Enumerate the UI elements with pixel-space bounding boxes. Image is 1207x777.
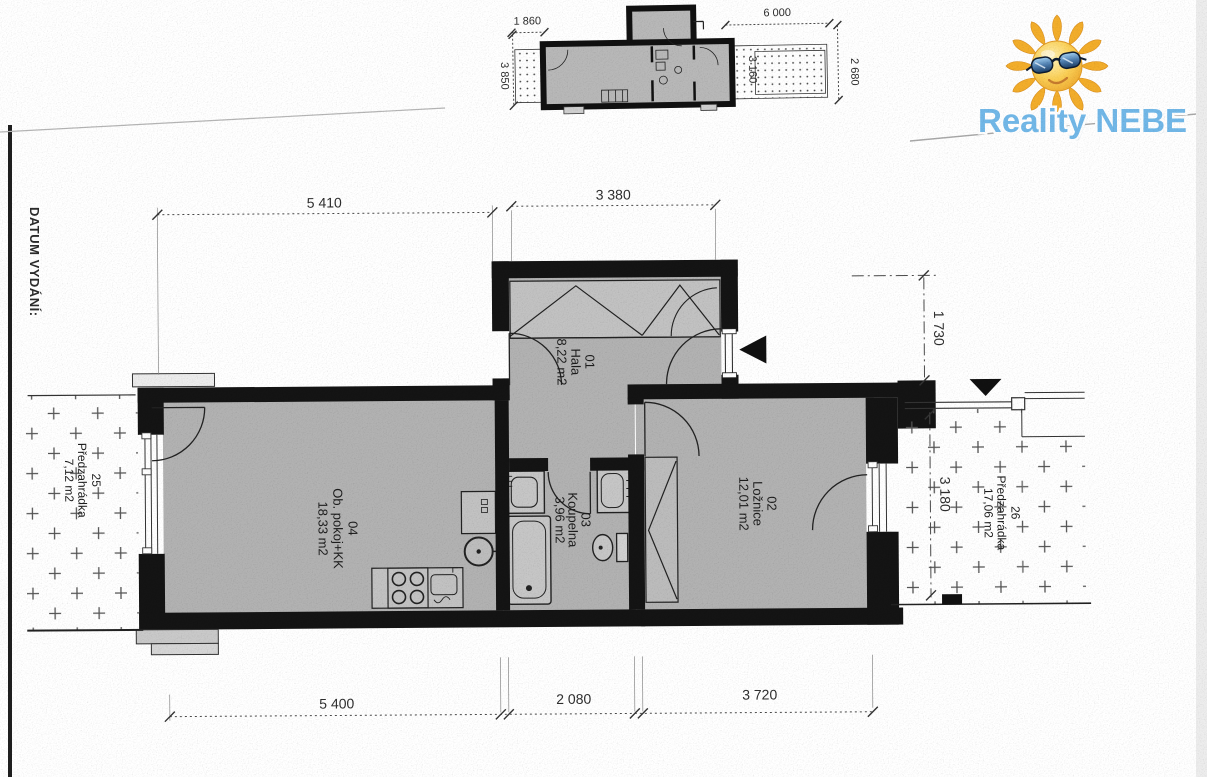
main-plan: 5 410 3 380 1 730 3 180 5 400 2 080 3 72… bbox=[24, 183, 1092, 722]
svg-text:01: 01 bbox=[582, 354, 597, 369]
mini-garden-left bbox=[515, 49, 544, 102]
mini-building bbox=[542, 7, 733, 114]
svg-text:Ložnice: Ložnice bbox=[750, 481, 765, 526]
kitchen-counter bbox=[372, 568, 463, 609]
svg-text:8,22 m2: 8,22 m2 bbox=[554, 338, 569, 385]
garden-entrance-arrow-icon bbox=[970, 379, 1002, 396]
mini-dim-top-left: 1 860 bbox=[513, 15, 541, 27]
svg-text:26: 26 bbox=[1008, 506, 1022, 520]
floorplan-canvas: DATUM VYDÁNÍ: 1 860 bbox=[0, 0, 1207, 777]
mini-overview-plan: 1 860 6 000 3 850 3 160 2 680 bbox=[497, 5, 861, 115]
main-dim-bottom-right: 3 720 bbox=[742, 686, 777, 702]
page-right-edge bbox=[1196, 0, 1207, 777]
mini-dim-top-right: 6 000 bbox=[763, 7, 791, 19]
svg-text:Ob. pokoj+KK: Ob. pokoj+KK bbox=[330, 488, 346, 569]
mini-dim-right: 2 680 bbox=[848, 58, 860, 86]
main-dim-right-garden: 3 180 bbox=[937, 477, 953, 512]
svg-text:12,01 m2: 12,01 m2 bbox=[736, 476, 751, 530]
window-left-icon bbox=[139, 433, 164, 554]
svg-text:18,33 m2: 18,33 m2 bbox=[315, 501, 330, 555]
closet-icon bbox=[510, 280, 720, 338]
svg-text:7,12 m2: 7,12 m2 bbox=[62, 459, 76, 503]
wardrobe-icon bbox=[645, 457, 678, 602]
main-dim-bottom-left: 5 400 bbox=[319, 695, 354, 711]
logo: Reality NEBE Reality NEBE bbox=[978, 15, 1189, 141]
svg-text:02: 02 bbox=[764, 496, 779, 511]
svg-text:17,06 m2: 17,06 m2 bbox=[981, 488, 995, 538]
fridge-icon bbox=[461, 491, 495, 533]
entrance-arrow-icon bbox=[739, 335, 766, 363]
mini-garden-right bbox=[732, 44, 828, 99]
washing-machine-icon bbox=[504, 471, 544, 513]
page-left-border bbox=[8, 125, 12, 777]
scan-line-top-left bbox=[0, 108, 445, 132]
svg-text:25: 25 bbox=[89, 473, 103, 487]
main-dim-top-center: 3 380 bbox=[596, 186, 631, 202]
washbasin-icon bbox=[597, 468, 631, 512]
bathtub-icon bbox=[507, 516, 551, 604]
mini-dim-left: 3 850 bbox=[498, 62, 510, 90]
main-dim-bottom-center: 2 080 bbox=[556, 691, 591, 707]
mini-dim-inner: 3 160 bbox=[746, 56, 758, 84]
main-dim-top-left: 5 410 bbox=[307, 194, 342, 210]
datum-vydani-label: DATUM VYDÁNÍ: bbox=[27, 207, 42, 317]
svg-text:3,96 m2: 3,96 m2 bbox=[552, 496, 567, 543]
window-right-icon bbox=[866, 462, 898, 532]
svg-text:Hala: Hala bbox=[568, 348, 583, 376]
main-dim-right-top: 1 730 bbox=[931, 311, 947, 346]
svg-text:04: 04 bbox=[345, 521, 360, 536]
logo-text: Reality NEBE bbox=[978, 102, 1187, 139]
